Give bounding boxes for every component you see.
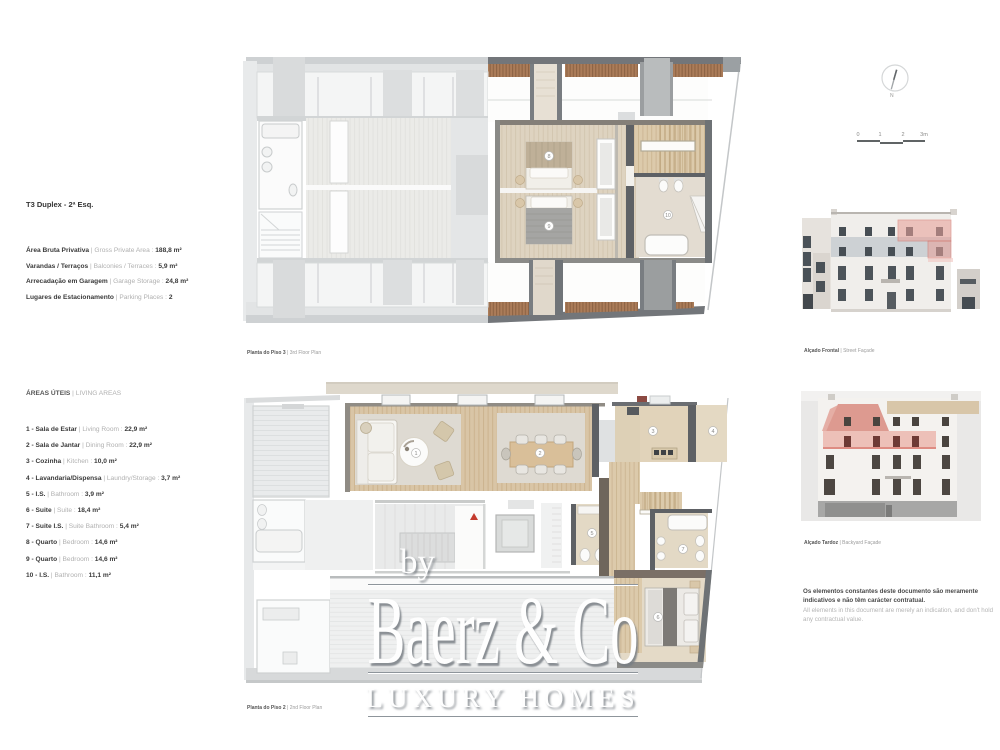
svg-text:3m: 3m xyxy=(920,132,928,138)
svg-text:1: 1 xyxy=(414,451,417,457)
svg-text:2: 2 xyxy=(901,132,904,138)
svg-text:N: N xyxy=(890,93,894,99)
svg-text:6: 6 xyxy=(656,615,659,621)
svg-text:5: 5 xyxy=(590,531,593,537)
svg-text:8: 8 xyxy=(547,154,550,160)
svg-text:9: 9 xyxy=(547,224,550,230)
svg-text:7: 7 xyxy=(681,547,684,553)
svg-text:3: 3 xyxy=(651,429,654,435)
svg-text:2: 2 xyxy=(538,451,541,457)
svg-text:1: 1 xyxy=(878,132,881,138)
svg-text:0: 0 xyxy=(856,132,859,138)
svg-text:4: 4 xyxy=(711,429,714,435)
svg-text:10: 10 xyxy=(665,213,671,219)
